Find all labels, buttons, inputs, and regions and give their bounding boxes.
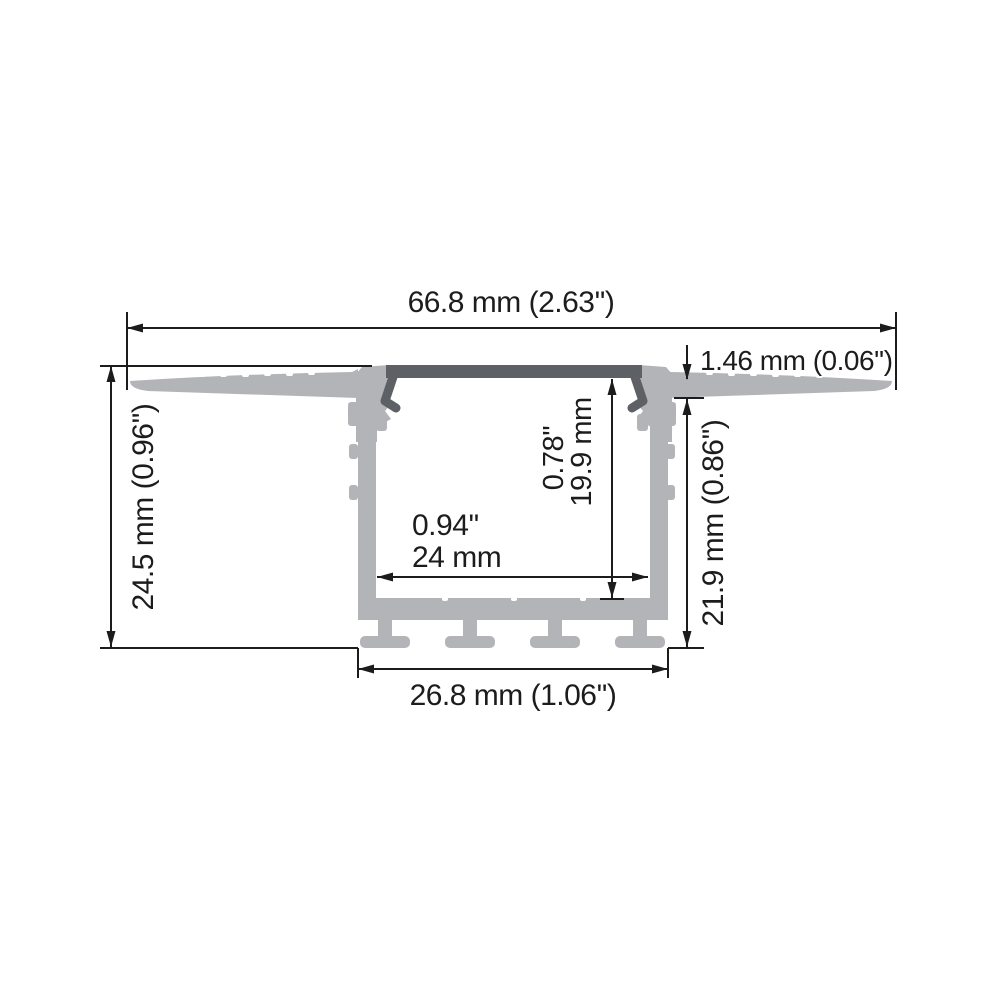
right-inner-ledge (637, 414, 648, 431)
arrowhead (683, 399, 692, 415)
left-wall-tooth (349, 485, 358, 500)
dim-label-overall-width: 66.8 mm (2.63'') (408, 286, 615, 319)
dim-label-base-width: 26.8 mm (1.06'') (410, 679, 617, 712)
left-wall (358, 396, 376, 602)
arrowhead (107, 631, 116, 647)
right-wall-tooth (666, 444, 675, 459)
dim-label-flange-thickness: 1.46 mm (0.06'') (700, 345, 893, 376)
dim-label-inner-height-mm: 19.9 mm (566, 397, 598, 506)
foot (360, 618, 410, 648)
dim-label-body-height: 21.9 mm (0.86'') (697, 420, 730, 627)
left-wall-tooth (348, 402, 358, 426)
arrowhead (127, 324, 143, 333)
arrowhead (608, 582, 617, 598)
right-wall (650, 396, 668, 602)
arrowhead (107, 366, 116, 382)
arrowhead (632, 573, 648, 582)
aluminum-profile (130, 365, 892, 648)
dim-label-inner-width-mm: 24 mm (412, 541, 501, 574)
left-inner-ledge (376, 414, 387, 431)
arrowhead (880, 324, 896, 333)
left-wall-tooth (349, 444, 358, 459)
diffuser-cover (385, 365, 643, 408)
arrowhead (652, 665, 668, 674)
foot (530, 618, 580, 648)
right-wall-tooth (666, 402, 676, 426)
cover-plate (386, 365, 642, 378)
arrowhead (358, 665, 374, 674)
dim-label-inner-width-in: 0.94'' (412, 509, 479, 542)
foot (615, 618, 665, 648)
foot (445, 618, 495, 648)
arrowhead (683, 631, 692, 647)
drawing-page: 66.8 mm (2.63'') 1.46 mm (0.06'') 24.5 m… (0, 0, 1000, 1000)
dim-label-overall-height: 24.5 mm (0.96'') (127, 404, 160, 611)
arrowhead (608, 379, 617, 395)
channel-floor (358, 598, 668, 620)
right-wall-tooth (666, 485, 675, 500)
profile-dimension-drawing: 66.8 mm (2.63'') 1.46 mm (0.06'') 24.5 m… (0, 0, 1000, 1000)
arrowhead (377, 573, 393, 582)
